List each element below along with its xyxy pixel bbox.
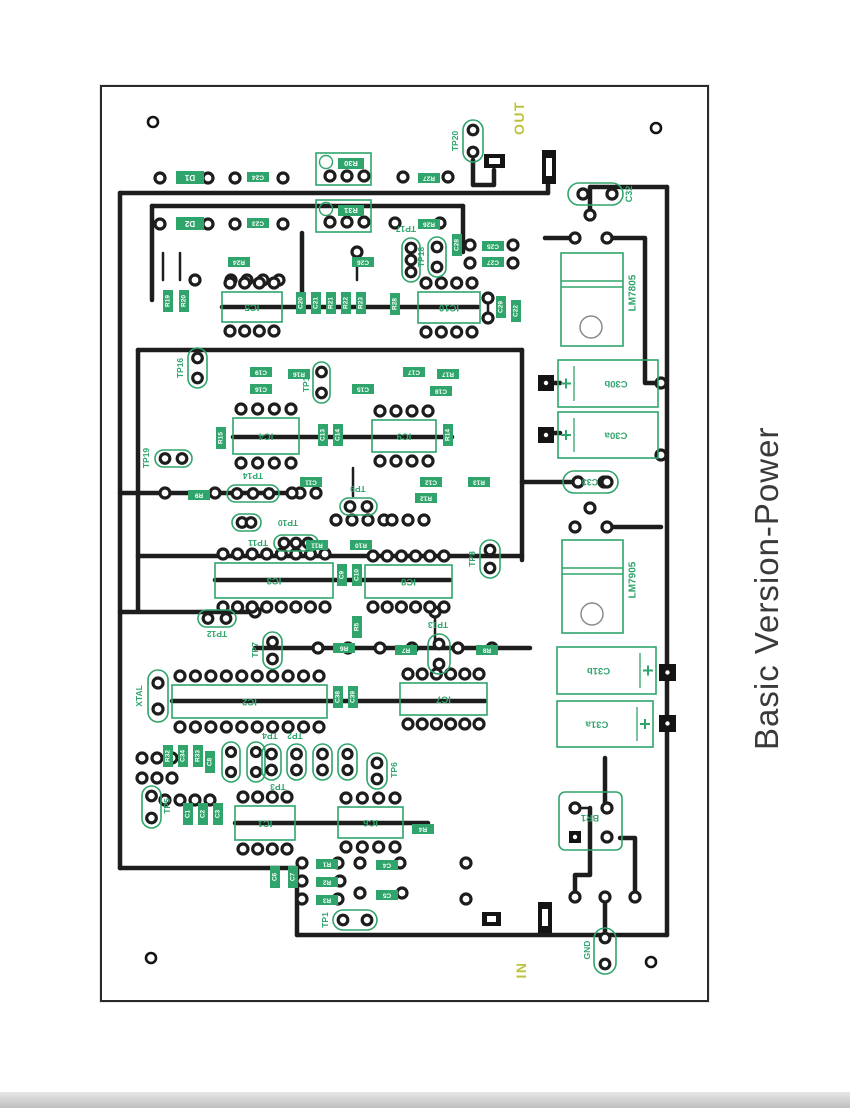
- pad: [387, 515, 397, 525]
- testpoint-TP16-label: TP16: [175, 358, 185, 379]
- pad: [268, 671, 278, 681]
- label-text-C25: C25: [487, 243, 499, 250]
- pad: [269, 404, 279, 414]
- square-pad-hole: [544, 381, 548, 385]
- pad: [236, 404, 246, 414]
- pad: [341, 793, 351, 803]
- pad: [206, 722, 216, 732]
- pad: [318, 749, 328, 759]
- label-text-R11: R11: [311, 542, 323, 549]
- pad: [362, 502, 372, 512]
- pad: [262, 549, 272, 559]
- pad: [238, 792, 248, 802]
- label-text-C21: C21: [313, 297, 320, 309]
- label-text-C11: C11: [305, 479, 317, 486]
- label-text-R19: R19: [165, 295, 172, 307]
- label-text-R2: R2: [322, 879, 331, 886]
- pad: [218, 549, 228, 559]
- label-text-C23: C23: [252, 220, 264, 227]
- pad: [230, 173, 240, 183]
- pad: [585, 210, 595, 220]
- pad: [282, 792, 292, 802]
- pad: [570, 803, 580, 813]
- pad: [390, 842, 400, 852]
- pad: [417, 669, 427, 679]
- label-text-R4: R4: [418, 826, 427, 833]
- testpoint-TP6-label: TP6: [389, 762, 399, 778]
- pad: [359, 171, 369, 181]
- pad: [390, 793, 400, 803]
- ic-label-IC10: IC10: [439, 302, 459, 313]
- pad: [407, 406, 417, 416]
- pad: [225, 326, 235, 336]
- pad: [452, 327, 462, 337]
- pad: [313, 643, 323, 653]
- pad: [291, 602, 301, 612]
- plus-mark: [640, 719, 650, 729]
- pad: [602, 233, 612, 243]
- xtal-label: XTAL: [134, 685, 144, 707]
- pad: [252, 671, 262, 681]
- board-text-in: IN: [513, 962, 529, 979]
- label-text-R28: R28: [392, 298, 399, 310]
- pad: [279, 538, 289, 548]
- label-text-R20: R20: [181, 295, 188, 307]
- pad: [206, 671, 216, 681]
- pad: [468, 125, 478, 135]
- pad: [203, 614, 213, 624]
- label-text-C17: C17: [408, 369, 420, 376]
- pad: [247, 602, 257, 612]
- pad: [177, 454, 187, 464]
- pad: [375, 456, 385, 466]
- label-text-R33: R33: [195, 750, 202, 762]
- pad: [362, 915, 372, 925]
- pad: [398, 172, 408, 182]
- cap-label-C31a: C31a: [585, 719, 608, 730]
- pad: [508, 258, 518, 268]
- pad: [359, 217, 369, 227]
- pad: [282, 844, 292, 854]
- pad: [474, 719, 484, 729]
- label-text-R27: R27: [423, 175, 435, 182]
- testpoint-TP19-label: TP19: [141, 448, 151, 469]
- label-text-R5: R5: [354, 622, 361, 631]
- pad: [343, 750, 352, 759]
- pad: [248, 489, 258, 499]
- testpoint-TP18-label: TP18: [416, 247, 426, 268]
- label-text-C20: C20: [298, 297, 305, 309]
- pad: [267, 844, 277, 854]
- pad: [411, 551, 421, 561]
- pad: [600, 892, 610, 902]
- pad: [155, 219, 165, 229]
- pad: [460, 719, 470, 729]
- pad: [320, 549, 330, 559]
- pad: [287, 488, 297, 498]
- pad: [269, 278, 279, 288]
- pad: [403, 669, 413, 679]
- pad: [439, 551, 449, 561]
- ic-label-IC1: IC1: [257, 818, 273, 829]
- regulator-label-LM7905: LM7905: [628, 561, 639, 598]
- label-text-R10: R10: [355, 542, 367, 549]
- pad: [602, 522, 612, 532]
- pad: [232, 489, 242, 499]
- pad: [320, 602, 330, 612]
- square-pad-hole: [573, 835, 577, 839]
- pad: [467, 327, 477, 337]
- pad: [452, 278, 462, 288]
- pad: [203, 173, 213, 183]
- pad: [345, 502, 355, 512]
- gnd-point-label: GND: [582, 941, 592, 960]
- pad: [225, 278, 235, 288]
- testpoint-TP5-label: TP5: [162, 798, 172, 814]
- pad: [465, 258, 475, 268]
- pad: [252, 722, 262, 732]
- pad: [268, 654, 278, 664]
- pad: [403, 719, 413, 729]
- pad: [347, 515, 357, 525]
- trimmer-screw: [320, 156, 333, 169]
- pad: [190, 671, 200, 681]
- pad: [286, 404, 296, 414]
- label-text-C27: C27: [487, 259, 499, 266]
- label-text-R3: R3: [322, 897, 331, 904]
- page-title: Basic Version-Power: [748, 382, 800, 794]
- pad: [221, 614, 231, 624]
- pad: [267, 765, 277, 775]
- pad: [253, 844, 263, 854]
- label-text-C7: C7: [290, 872, 297, 881]
- pad: [137, 753, 147, 763]
- pad: [443, 172, 453, 182]
- pad: [247, 549, 257, 559]
- plus-mark: [643, 666, 653, 676]
- square-pad-hole: [544, 433, 548, 437]
- label-text-C26: C26: [357, 259, 369, 266]
- ic-label-IC5: IC5: [244, 302, 260, 313]
- pad: [372, 758, 382, 768]
- pad: [269, 458, 279, 468]
- pad: [578, 189, 588, 199]
- label-text-C29: C29: [498, 301, 505, 313]
- scan-edge-shadow: [0, 1092, 850, 1108]
- testpoint-TP14-label: TP14: [243, 471, 264, 481]
- ic-label-IC2: IC2: [242, 696, 257, 707]
- pad: [254, 326, 264, 336]
- cap-label-C32: C32: [624, 186, 634, 203]
- pad: [600, 959, 610, 969]
- label-text-C2: C2: [200, 809, 207, 818]
- label-text-R17: R17: [442, 371, 454, 378]
- testpoint-TP17-label: TP17: [396, 224, 417, 234]
- pad: [465, 240, 475, 250]
- pad: [233, 602, 243, 612]
- pad: [368, 551, 378, 561]
- pad: [167, 773, 177, 783]
- testpoint-TP10-label: TP10: [278, 518, 299, 528]
- label-text-R14: R14: [445, 429, 452, 441]
- pad: [152, 773, 162, 783]
- pad: [485, 563, 495, 573]
- cap-label-C30a: C30a: [604, 430, 627, 441]
- pad: [375, 643, 385, 653]
- pad: [311, 488, 321, 498]
- pad: [262, 602, 272, 612]
- testpoint-TP11-label: TP11: [248, 538, 268, 548]
- pad: [210, 488, 220, 498]
- pad: [278, 219, 288, 229]
- pad: [342, 217, 352, 227]
- pad: [230, 219, 240, 229]
- pad: [600, 933, 610, 943]
- pad: [630, 892, 640, 902]
- label-text-C34: C34: [180, 750, 187, 762]
- label-text-R12: R12: [420, 495, 432, 502]
- pad: [267, 792, 277, 802]
- pad: [570, 233, 580, 243]
- pcb-layout-drawing: IC5IC10IC4IC9IC3IC8IC2IC7IC1IC6LM7805LM7…: [0, 0, 850, 1108]
- testpoint-TP1-label: TP1: [320, 912, 330, 928]
- pad: [221, 722, 231, 732]
- pad: [585, 503, 595, 513]
- pad: [357, 793, 367, 803]
- pad: [411, 602, 421, 612]
- pad: [160, 488, 170, 498]
- pad: [283, 671, 293, 681]
- pad: [253, 792, 263, 802]
- regulator-hole: [580, 316, 602, 338]
- pad: [175, 671, 185, 681]
- pad: [152, 753, 162, 763]
- pad: [318, 765, 328, 775]
- label-text-R8: R8: [482, 647, 491, 654]
- label-text-C13: C13: [320, 429, 327, 441]
- diode-label-D1: D1: [184, 173, 195, 182]
- pad: [240, 326, 250, 336]
- pad: [190, 722, 200, 732]
- pad: [397, 888, 407, 898]
- pad: [432, 262, 442, 272]
- label-text-C10: C10: [354, 569, 361, 581]
- pad: [193, 373, 203, 383]
- pad: [193, 353, 203, 363]
- mounting-hole: [651, 123, 661, 133]
- cap-label-C30b: C30b: [604, 378, 627, 389]
- pad: [352, 247, 362, 257]
- smd-pad-slot: [542, 909, 548, 926]
- pad: [137, 773, 147, 783]
- pad: [421, 278, 431, 288]
- label-text-R6: R6: [339, 645, 348, 652]
- pad: [436, 278, 446, 288]
- pad: [343, 766, 352, 775]
- mounting-hole: [646, 957, 656, 967]
- testpoint-TP13-label: TP13: [428, 620, 449, 630]
- pad: [406, 243, 416, 253]
- pad: [431, 719, 441, 729]
- label-text-R7: R7: [401, 647, 410, 654]
- pad: [368, 602, 378, 612]
- pad: [355, 858, 365, 868]
- label-text-C5: C5: [382, 892, 391, 899]
- pad: [425, 602, 435, 612]
- pad: [406, 267, 416, 277]
- pad: [432, 242, 442, 252]
- pad: [269, 326, 279, 336]
- ic-label-IC9: IC9: [397, 431, 412, 442]
- board-text-out: OUT: [511, 101, 527, 135]
- pad: [253, 404, 263, 414]
- pad: [317, 367, 327, 377]
- pad: [434, 659, 444, 669]
- pad: [342, 171, 352, 181]
- pad: [276, 602, 286, 612]
- pad: [363, 515, 373, 525]
- pad: [607, 189, 617, 199]
- pad: [357, 842, 367, 852]
- pad: [268, 637, 278, 647]
- label-text-C22: C22: [513, 305, 520, 317]
- plus-mark: [561, 430, 571, 440]
- square-pad-hole: [665, 670, 669, 674]
- label-text-C38: C38: [335, 691, 342, 703]
- label-text-C6: C6: [272, 872, 279, 881]
- label-text-C9: C9: [339, 570, 346, 579]
- pad: [453, 643, 463, 653]
- diode-label-D2: D2: [184, 219, 195, 228]
- pad: [391, 456, 401, 466]
- label-text-R24: R24: [233, 259, 245, 266]
- label-text-C3: C3: [215, 809, 222, 818]
- pad: [467, 278, 477, 288]
- pad: [483, 313, 493, 323]
- testpoint-TP3-label: TP3: [270, 782, 286, 792]
- pad: [382, 551, 392, 561]
- pad: [423, 456, 433, 466]
- pad: [573, 477, 583, 487]
- pad: [439, 602, 449, 612]
- pad: [236, 458, 246, 468]
- pad: [570, 522, 580, 532]
- pad: [253, 458, 263, 468]
- pad: [468, 147, 478, 157]
- pad: [203, 219, 213, 229]
- label-text-R22: R22: [343, 297, 350, 309]
- smd-pad-slot: [489, 158, 500, 164]
- label-text-R26: R26: [423, 221, 435, 228]
- ic-label-IC6: IC6: [363, 817, 378, 828]
- label-text-C15: C15: [357, 386, 369, 393]
- pad: [508, 240, 518, 250]
- pad: [175, 722, 185, 732]
- pad: [374, 793, 384, 803]
- pad: [297, 894, 307, 904]
- cap-label-C31b: C31b: [587, 665, 610, 676]
- pad: [233, 549, 243, 559]
- pad: [483, 293, 493, 303]
- smd-pad-slot: [487, 916, 496, 922]
- pad: [297, 858, 307, 868]
- label-text-C4: C4: [382, 862, 391, 869]
- pad: [375, 406, 385, 416]
- label-text-R15: R15: [218, 432, 225, 444]
- pad: [461, 858, 471, 868]
- pad: [331, 515, 341, 525]
- pad: [382, 602, 392, 612]
- pad: [254, 278, 264, 288]
- plus-mark: [561, 379, 571, 389]
- pad: [155, 173, 165, 183]
- regulator-hole: [581, 603, 603, 625]
- pad: [425, 551, 435, 561]
- pad: [602, 803, 612, 813]
- mounting-hole: [146, 953, 156, 963]
- label-text-C1: C1: [185, 809, 192, 818]
- pad: [267, 749, 277, 759]
- pad: [252, 748, 261, 757]
- pad: [292, 765, 302, 775]
- pad: [374, 842, 384, 852]
- pad: [153, 678, 163, 688]
- pad: [190, 275, 200, 285]
- scanned-page: IC5IC10IC4IC9IC3IC8IC2IC7IC1IC6LM7805LM7…: [0, 0, 850, 1108]
- label-text-C24: C24: [252, 174, 264, 181]
- label-text-C18: C18: [435, 388, 447, 395]
- pad: [227, 768, 236, 777]
- trimmer-label-R30: R30: [344, 159, 358, 168]
- pad: [417, 719, 427, 729]
- label-text-R1: R1: [322, 861, 331, 868]
- label-text-C39: C39: [350, 691, 357, 703]
- ic-label-IC4: IC4: [258, 431, 274, 442]
- pad: [325, 171, 335, 181]
- testpoint-TP2-label: TP2: [287, 731, 303, 741]
- pad: [237, 722, 247, 732]
- label-text-C16: C16: [255, 386, 267, 393]
- label-text-C14: C14: [335, 429, 342, 441]
- pad: [403, 515, 413, 525]
- mounting-hole: [148, 117, 158, 127]
- ic-label-IC8: IC8: [401, 576, 416, 587]
- square-pad-hole: [665, 721, 669, 725]
- pad: [419, 515, 429, 525]
- pad: [314, 722, 324, 732]
- label-text-R32: R32: [165, 750, 172, 762]
- pad: [372, 774, 382, 784]
- label-text-C19: C19: [255, 369, 267, 376]
- testpoint-TP20-label: TP20: [450, 131, 460, 152]
- testpoint-TP7-label: TP7: [250, 642, 260, 658]
- bridge-label: BR1: [581, 813, 599, 823]
- pad: [160, 454, 170, 464]
- pad: [305, 602, 315, 612]
- label-text-R13: R13: [473, 479, 485, 486]
- smd-pad-slot: [546, 158, 552, 176]
- pad: [570, 892, 580, 902]
- pad: [278, 173, 288, 183]
- pad: [221, 671, 231, 681]
- cap-label-C33: C33: [582, 477, 599, 487]
- pad: [421, 327, 431, 337]
- pad: [286, 458, 296, 468]
- testpoint-TP9-label: TP9: [350, 484, 366, 494]
- pad: [436, 327, 446, 337]
- pad: [341, 842, 351, 852]
- pad: [299, 671, 309, 681]
